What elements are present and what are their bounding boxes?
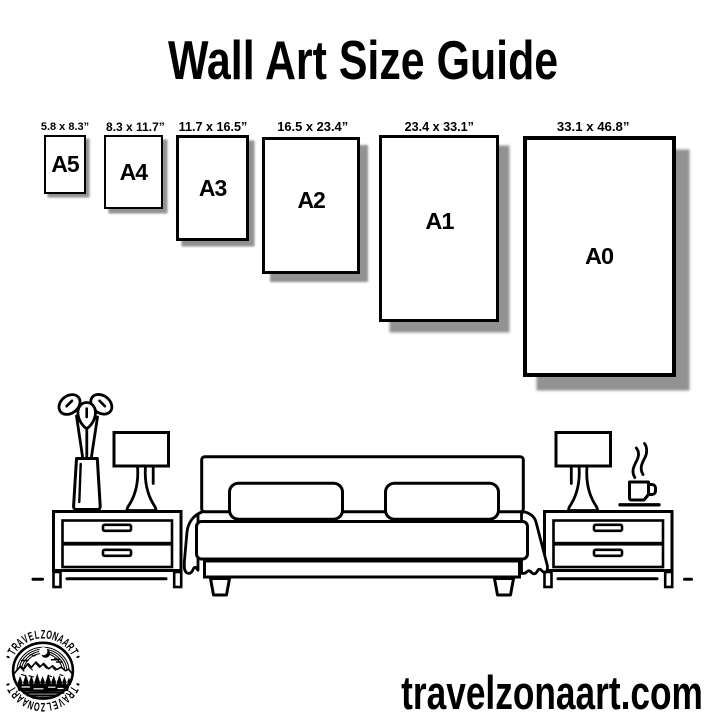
svg-text:Z: Z [41,699,46,712]
svg-text:Z: Z [41,629,46,642]
